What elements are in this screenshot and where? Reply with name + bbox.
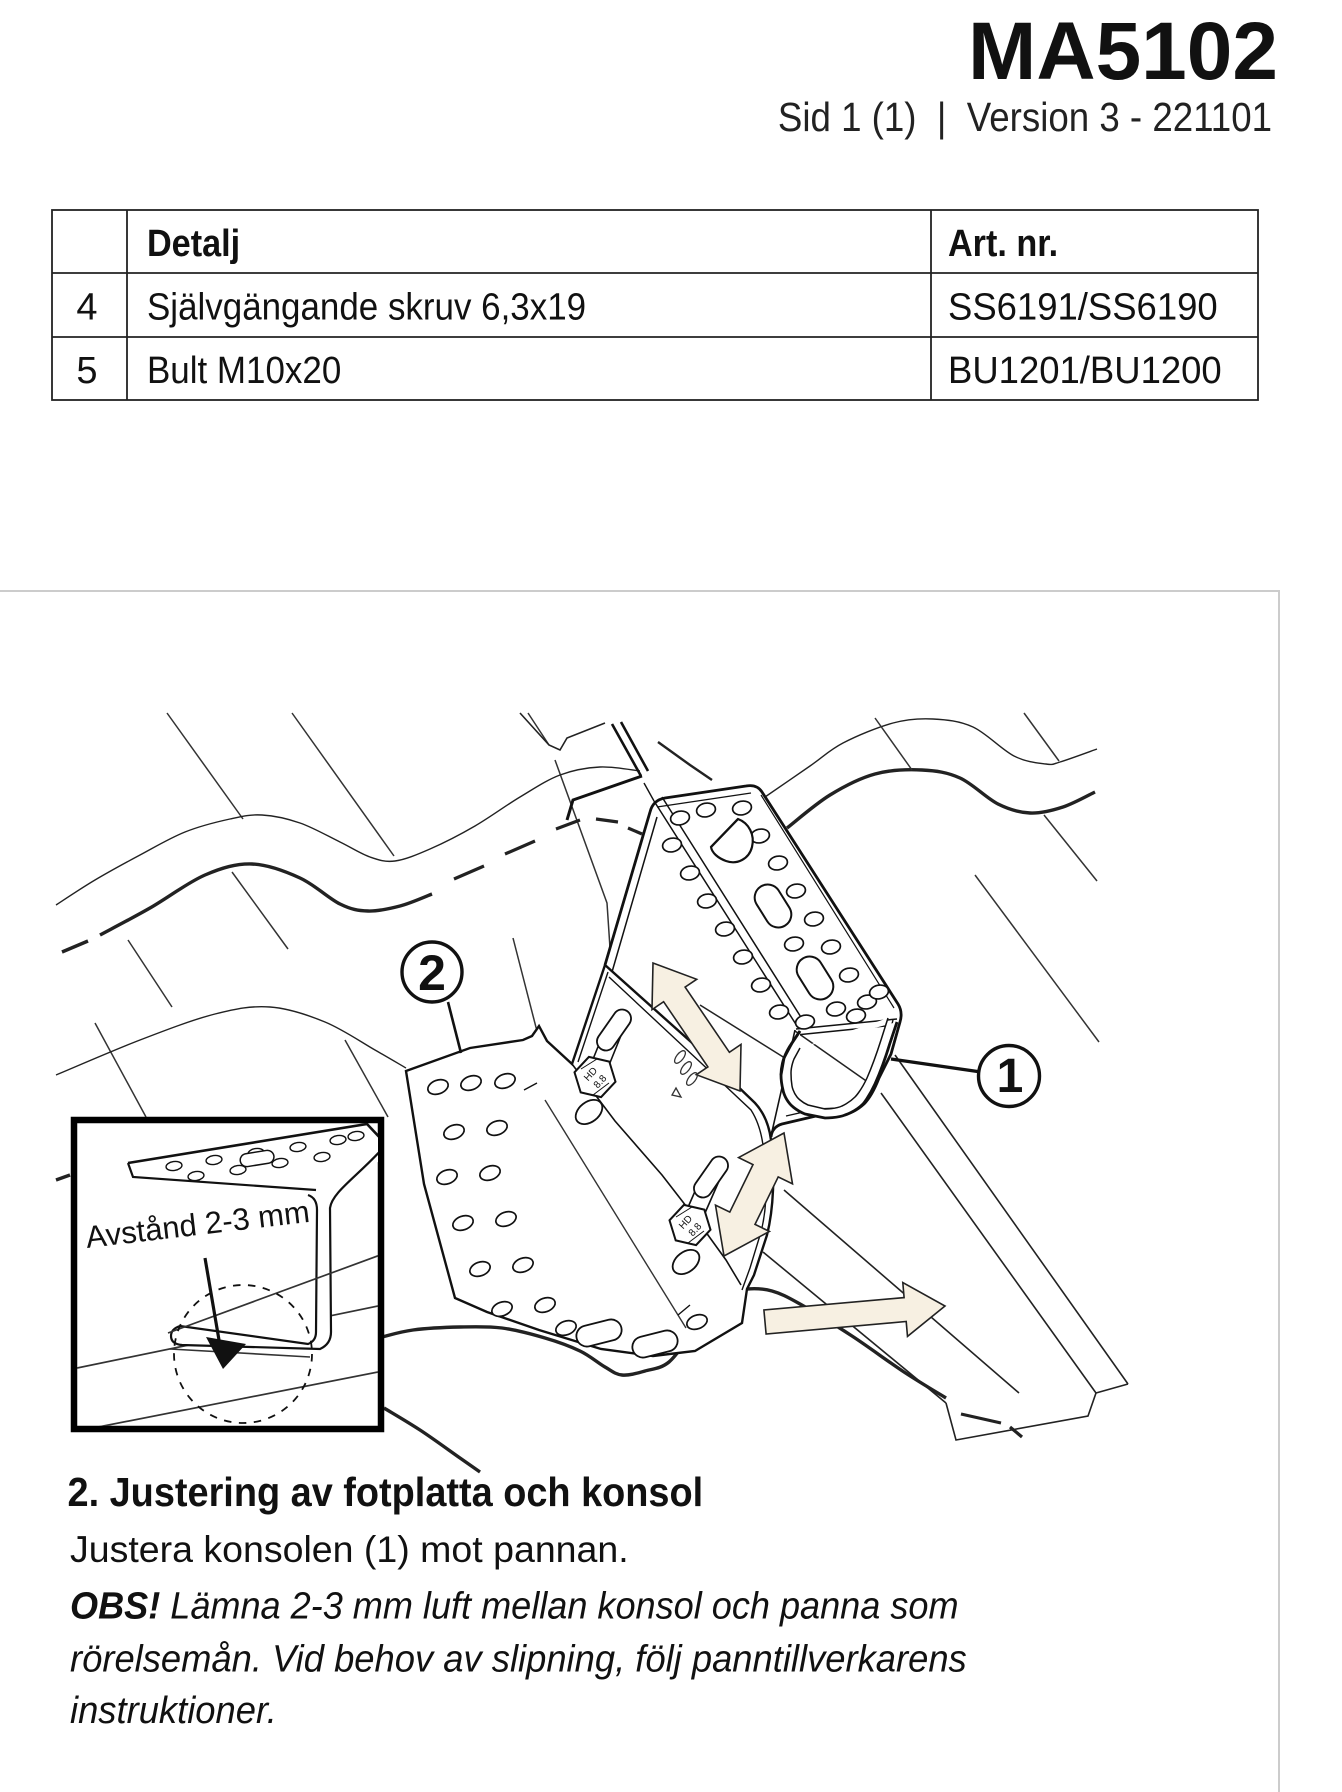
- svg-text:rörelsemån. Vid behov av slipn: rörelsemån. Vid behov av slipning, följ …: [70, 1637, 967, 1680]
- svg-text:5: 5: [76, 350, 97, 392]
- svg-text:MA5102: MA5102: [968, 6, 1278, 97]
- svg-text:Art. nr.: Art. nr.: [948, 221, 1058, 264]
- svg-text:Detalj: Detalj: [147, 221, 240, 264]
- svg-text:Självgängande skruv 6,3x19: Självgängande skruv 6,3x19: [147, 285, 586, 328]
- svg-text:Justera konsolen (1) mot panna: Justera konsolen (1) mot pannan.: [70, 1528, 629, 1570]
- svg-text:1: 1: [997, 1050, 1024, 1103]
- svg-text:4: 4: [76, 287, 97, 329]
- svg-text:2. Justering av fotplatta och: 2. Justering av fotplatta och konsol: [68, 1470, 704, 1516]
- svg-text:Bult M10x20: Bult M10x20: [147, 349, 341, 392]
- svg-text:2: 2: [418, 945, 446, 1001]
- svg-text:instruktioner.: instruktioner.: [70, 1688, 277, 1731]
- svg-text:SS6191/SS6190: SS6191/SS6190: [948, 285, 1218, 328]
- svg-text:Sid 1 (1) | Version 3 - 2211: Sid 1 (1) | Version 3 - 221101: [778, 95, 1272, 140]
- svg-text:BU1201/BU1200: BU1201/BU1200: [948, 348, 1222, 391]
- svg-text:OBS! Lämna 2-3 mm luft mellan: OBS! Lämna 2-3 mm luft mellan konsol och…: [70, 1584, 959, 1627]
